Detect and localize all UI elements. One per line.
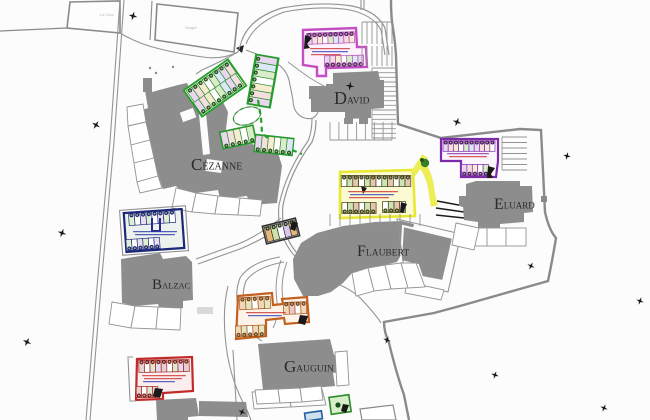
- svg-text:Verger: Verger: [185, 25, 197, 30]
- svg-text:Le Clos: Le Clos: [100, 12, 114, 17]
